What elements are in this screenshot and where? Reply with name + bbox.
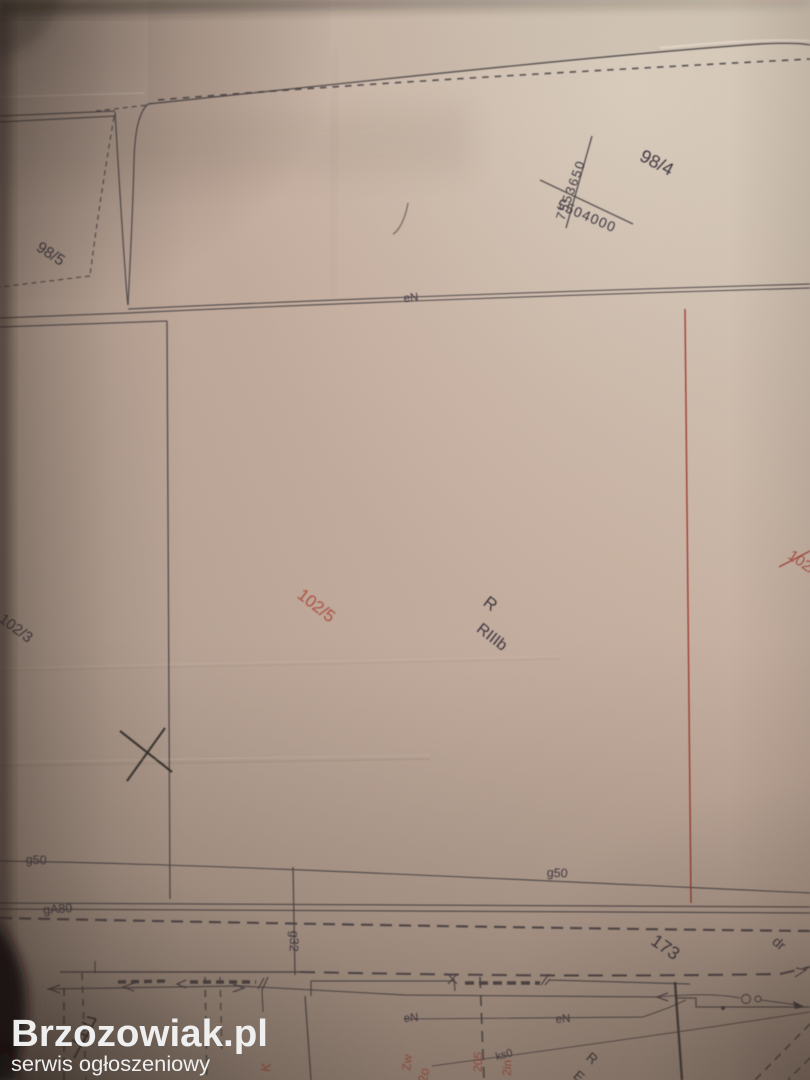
svg-text:Brzozowiak.pl: Brzozowiak.pl [11,1013,268,1055]
svg-text:serwis ogłoszeniowy: serwis ogłoszeniowy [11,1053,211,1076]
